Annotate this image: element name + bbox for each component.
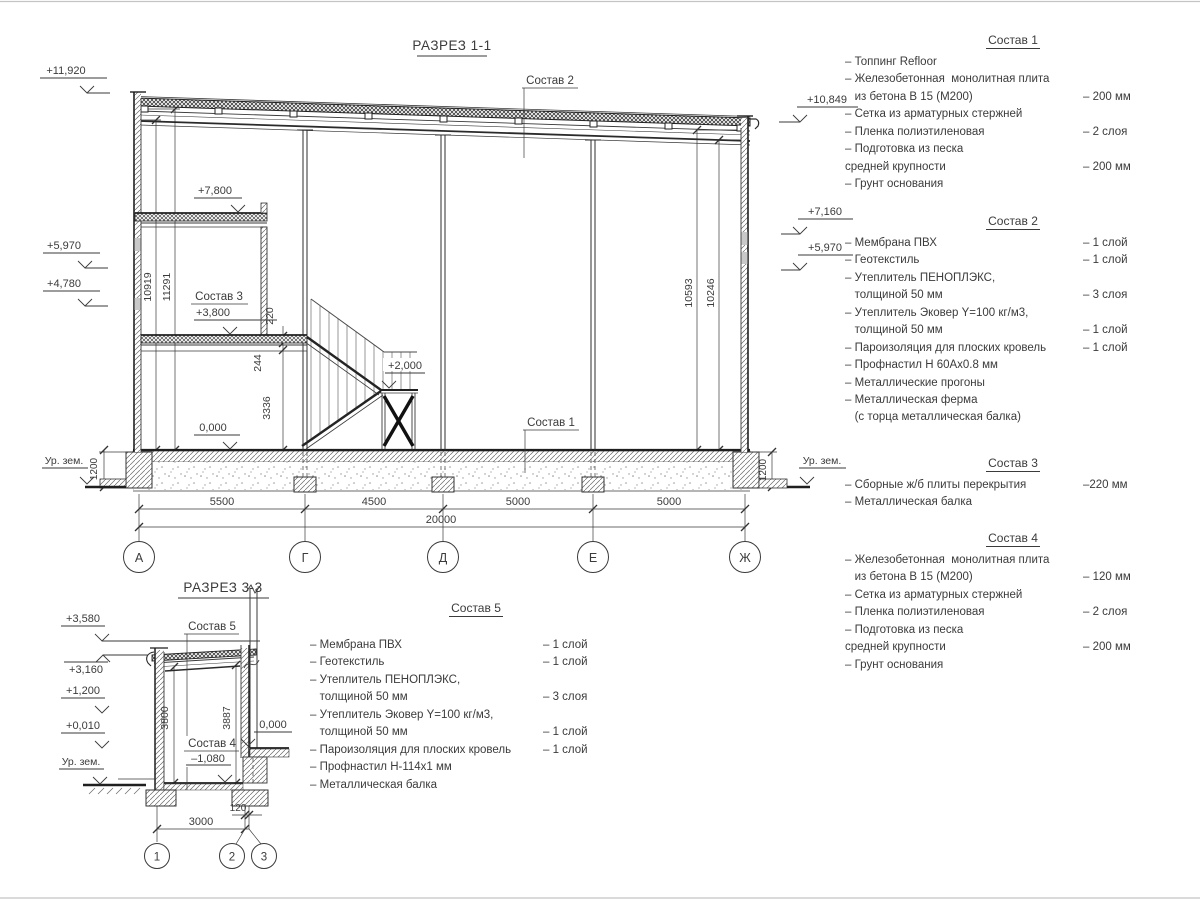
composition-item: – Металлическая балка (845, 494, 1137, 511)
dim-3887: 3887 (221, 706, 233, 730)
elev-11920: +11,920 (46, 65, 85, 77)
elev-0000-s3: 0,000 (259, 719, 287, 731)
composition-item: из бетона В 15 (М200)– 120 мм (845, 569, 1137, 586)
composition-item: – Металлическая балка (310, 777, 602, 794)
composition-item: – Геотекстиль– 1 слой (845, 252, 1137, 269)
composition-item: из бетона В 15 (М200)– 200 мм (845, 89, 1137, 106)
elev-3800: +3,800 (196, 307, 230, 319)
dim-1200-right: 1200 (758, 458, 769, 481)
elev-2000: +2,000 (388, 360, 422, 372)
composition-item: – Топпинг Refloor (845, 54, 1137, 71)
composition-list-3: Состав 3– Сборные ж/б плиты перекрытия–2… (845, 456, 1137, 512)
elev-0010: +0,010 (66, 720, 100, 732)
composition-item: – Пароизоляция для плоских кровель– 1 сл… (310, 742, 602, 759)
composition-item: средней крупности– 200 мм (845, 159, 1137, 176)
composition-item: (с торца металлическая балка) (845, 409, 1137, 426)
composition-title: Состав 1 (867, 33, 1159, 47)
column (297, 130, 601, 450)
label-sostav1: Состав 1 (527, 417, 575, 429)
section3-title: РАЗРЕЗ 3-3 (183, 580, 262, 595)
elev-4780: +4,780 (47, 278, 81, 290)
composition-item: – Железобетонная монолитная плита (845, 71, 1137, 88)
composition-item: – Профнастил Н 60Ах0.8 мм (845, 357, 1137, 374)
dim-3800: 3800 (159, 706, 171, 730)
ground-level-s3: Ур. зем. (62, 756, 101, 768)
section1-floor (85, 450, 810, 492)
elev-1200: +1,200 (66, 685, 100, 697)
elev-3160: +3,160 (69, 664, 103, 676)
composition-item: – Мембрана ПВХ– 1 слой (845, 235, 1137, 252)
composition-list-4: Состав 4– Железобетонная монолитная плит… (845, 531, 1137, 674)
section1-title: РАЗРЕЗ 1-1 (412, 38, 491, 53)
dim-10919: 10919 (142, 272, 154, 301)
composition-item: толщиной 50 мм– 1 слой (310, 724, 602, 741)
composition-item: – Грунт основания (845, 176, 1137, 193)
composition-list-5: Состав 5– Мембрана ПВХ– 1 слой– Геотекст… (310, 601, 602, 794)
elev-5970-right: +5,970 (808, 242, 842, 254)
axis-2: 2 (229, 852, 235, 864)
dim-3000: 3000 (189, 816, 213, 828)
label-sostav2: Состав 2 (526, 75, 574, 87)
composition-item: – Металлические прогоны (845, 375, 1137, 392)
composition-title: Состав 2 (867, 214, 1159, 228)
dim-1200-left: 1200 (89, 457, 100, 480)
composition-title: Состав 3 (867, 456, 1159, 470)
axis-E: Е (589, 551, 597, 565)
axis-D: Д (439, 551, 448, 565)
composition-item: – Мембрана ПВХ– 1 слой (310, 637, 602, 654)
composition-item: толщиной 50 мм– 3 слоя (845, 287, 1137, 304)
dim-120: 120 (230, 803, 247, 814)
label-sostav4: Состав 4 (188, 738, 236, 750)
composition-item: – Подготовка из песка (845, 622, 1137, 639)
axis-1: 1 (154, 852, 160, 864)
composition-item: – Металлическая ферма (845, 392, 1137, 409)
composition-item: – Грунт основания (845, 657, 1137, 674)
dim-10246: 10246 (705, 278, 717, 307)
composition-item: – Утеплитель Эковер Y=100 кг/м3, (845, 305, 1137, 322)
dim-5000-a: 5000 (506, 496, 530, 508)
dim-5500: 5500 (210, 496, 234, 508)
composition-item: – Профнастил Н-114х1 мм (310, 759, 602, 776)
dim-5000-b: 5000 (657, 496, 681, 508)
composition-item: – Утеплитель ПЕНОПЛЭКС, (310, 672, 602, 689)
dim-10593: 10593 (683, 278, 695, 307)
dim-220: 220 (264, 307, 276, 325)
elev-10849: +10,849 (807, 94, 847, 106)
composition-item: толщиной 50 мм– 1 слой (845, 322, 1137, 339)
label-sostav5: Состав 5 (188, 621, 236, 633)
label-sostav3: Состав 3 (195, 291, 243, 303)
composition-item: средней крупности– 200 мм (845, 639, 1137, 656)
axis-3: 3 (261, 852, 267, 864)
composition-item: – Пленка полиэтиленовая– 2 слоя (845, 124, 1137, 141)
dim-11291: 11291 (161, 273, 173, 302)
elev-minus-1080: –1,080 (191, 753, 225, 765)
composition-title: Состав 4 (867, 531, 1159, 545)
elev-3580: +3,580 (66, 613, 100, 625)
axis-Zh: Ж (739, 551, 751, 565)
composition-item: – Утеплитель ПЕНОПЛЭКС, (845, 270, 1137, 287)
dim-3336: 3336 (261, 396, 273, 420)
axis-G: Г (302, 551, 309, 565)
composition-list-2: Состав 2– Мембрана ПВХ– 1 слой– Геотекст… (845, 214, 1137, 427)
section3-structure (83, 585, 289, 806)
dim-244: 244 (252, 354, 264, 372)
axis-A: А (135, 551, 144, 565)
composition-item: – Железобетонная монолитная плита (845, 552, 1137, 569)
composition-item: – Подготовка из песка (845, 141, 1137, 158)
composition-item: – Геотекстиль– 1 слой (310, 654, 602, 671)
composition-item: толщиной 50 мм– 3 слоя (310, 689, 602, 706)
elev-0000: 0,000 (199, 422, 227, 434)
ground-level-left: Ур. зем. (45, 455, 84, 467)
composition-item: – Пароизоляция для плоских кровель– 1 сл… (845, 340, 1137, 357)
composition-item: – Сборные ж/б плиты перекрытия–220 мм (845, 477, 1137, 494)
section1-roof (138, 97, 759, 146)
composition-list-1: Состав 1– Топпинг Refloor– Железобетонна… (845, 33, 1137, 194)
composition-item: – Сетка из арматурных стержней (845, 587, 1137, 604)
composition-item: – Сетка из арматурных стержней (845, 106, 1137, 123)
section1-walls-columns (130, 92, 753, 452)
elev-7800: +7,800 (198, 185, 232, 197)
ground-level-right: Ур. зем. (803, 455, 842, 467)
dim-4500: 4500 (362, 496, 386, 508)
composition-title: Состав 5 (330, 601, 622, 615)
composition-item: – Утеплитель Эковер Y=100 кг/м3, (310, 707, 602, 724)
elev-7160: +7,160 (808, 206, 842, 218)
elev-5970-left: +5,970 (47, 240, 81, 252)
composition-item: – Пленка полиэтиленовая– 2 слоя (845, 604, 1137, 621)
dim-20000: 20000 (426, 514, 457, 526)
axis-circles-s3 (145, 844, 277, 869)
section1-stairs (302, 299, 418, 449)
